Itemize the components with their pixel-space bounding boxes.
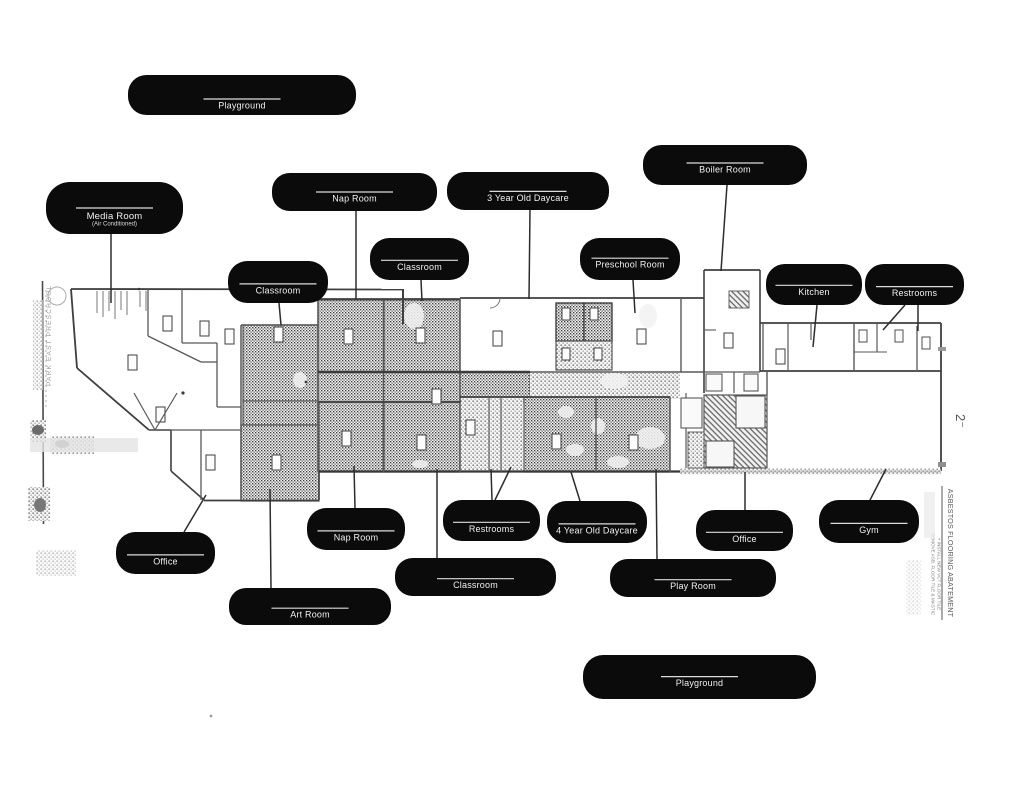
svg-text:Office: Office bbox=[732, 534, 757, 544]
svg-text:+ INSTALL NEW VCT FLOOR TILE: + INSTALL NEW VCT FLOOR TILE bbox=[937, 538, 942, 610]
svg-text:Media Room: Media Room bbox=[87, 211, 143, 222]
svg-text:4 Year Old Daycare: 4 Year Old Daycare bbox=[556, 525, 638, 535]
svg-text:3 Year Old Daycare: 3 Year Old Daycare bbox=[487, 193, 569, 203]
svg-text:ASBESTOS FLOORING ABATEMENT: ASBESTOS FLOORING ABATEMENT bbox=[946, 489, 955, 618]
svg-text:Classroom: Classroom bbox=[453, 580, 498, 590]
svg-text:Classroom: Classroom bbox=[397, 262, 442, 272]
svg-text:Playground: Playground bbox=[676, 678, 724, 688]
svg-text:Kitchen: Kitchen bbox=[798, 287, 829, 297]
svg-text:Preschool Room: Preschool Room bbox=[595, 260, 664, 270]
svg-text:Restrooms: Restrooms bbox=[469, 524, 515, 534]
svg-text:Gym: Gym bbox=[859, 525, 879, 535]
svg-text:2⁻: 2⁻ bbox=[953, 414, 968, 428]
svg-text:Nap Room: Nap Room bbox=[334, 532, 379, 542]
svg-text:Office: Office bbox=[153, 556, 178, 566]
svg-text:Playground: Playground bbox=[218, 101, 266, 111]
svg-text:(Air Conditioned): (Air Conditioned) bbox=[92, 222, 137, 228]
svg-text:Art Room: Art Room bbox=[290, 610, 330, 620]
svg-text:Classroom: Classroom bbox=[256, 285, 301, 295]
svg-text:Nap Room: Nap Room bbox=[332, 194, 377, 204]
svg-text:Restrooms: Restrooms bbox=[892, 288, 938, 298]
svg-text:Play Room: Play Room bbox=[670, 581, 716, 591]
svg-text:Boiler Room: Boiler Room bbox=[699, 165, 751, 175]
svg-text:REMOVE ASB. FLOOR TILE & MASTI: REMOVE ASB. FLOOR TILE & MASTIC bbox=[931, 533, 936, 616]
svg-text:PARK EAST PRESCHOOL: PARK EAST PRESCHOOL bbox=[46, 285, 53, 386]
